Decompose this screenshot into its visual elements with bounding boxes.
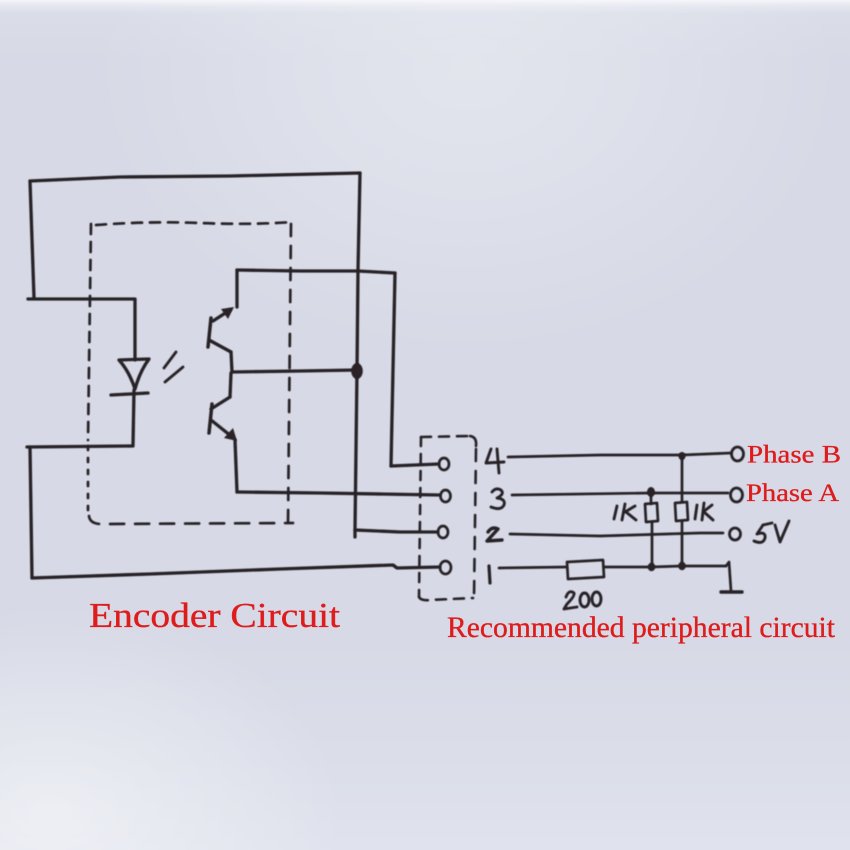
svg-text:Phase B: Phase B (747, 442, 841, 469)
svg-text:Phase A: Phase A (746, 480, 839, 507)
svg-text:Encoder Circuit: Encoder Circuit (89, 596, 340, 635)
svg-text:Recommended peripheral circuit: Recommended peripheral circuit (447, 611, 836, 644)
